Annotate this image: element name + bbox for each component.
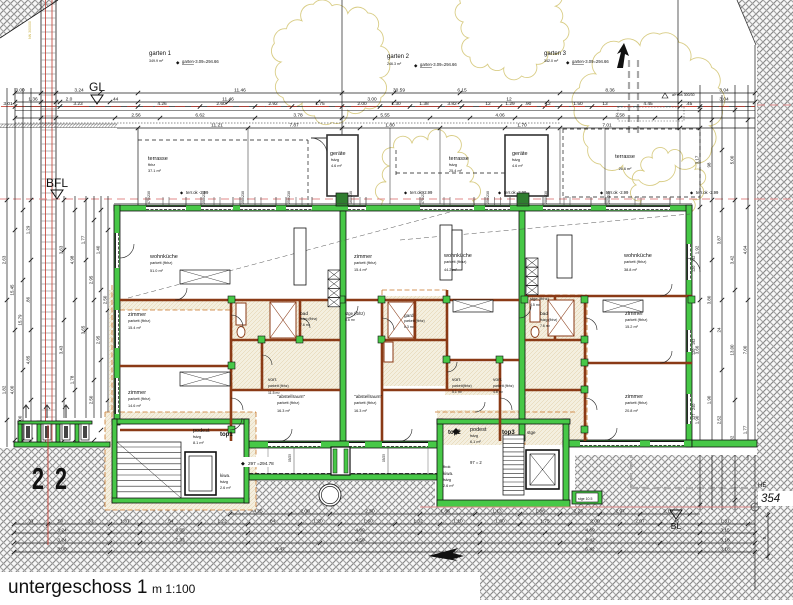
svg-text:parkett(fbhz): parkett(fbhz) [452,384,472,388]
svg-text:terr.ok -2.99: terr.ok -2.99 [696,190,719,195]
svg-text:44.2 m²: 44.2 m² [444,268,458,272]
svg-text:fstzg: fstzg [331,158,339,162]
svg-text:◆: ◆ [414,63,418,68]
svg-text:garten 1: garten 1 [149,51,172,57]
svg-text:1.31: 1.31 [720,518,730,524]
svg-text:240: 240 [692,404,696,410]
svg-text:98: 98 [707,162,712,167]
svg-text:1.32: 1.32 [413,518,423,524]
svg-text:475/230: 475/230 [421,191,425,204]
svg-text:1.90: 1.90 [707,395,712,404]
svg-text:◆: ◆ [176,60,180,65]
svg-text:3.00: 3.00 [367,96,377,102]
svg-text:garten 2: garten 2 [387,54,410,60]
svg-text:3.04: 3.04 [719,96,729,102]
svg-text:fstzg: fstzg [512,158,520,162]
svg-text:8.36: 8.36 [605,87,615,93]
svg-text:11.21: 11.21 [211,122,223,128]
svg-text:4.59: 4.59 [355,537,365,543]
svg-text:1.80: 1.80 [385,122,395,128]
svg-text:127: 127 [692,414,696,420]
svg-text:2: 2 [32,461,44,496]
svg-text:15.2 m²: 15.2 m² [625,325,639,329]
svg-text:4.5 m²: 4.5 m² [530,303,541,307]
svg-text:stge: stge [527,430,536,435]
svg-text:.33: .33 [27,518,34,524]
svg-text:4.6 m²: 4.6 m² [331,164,342,168]
svg-text:11.46: 11.46 [234,87,246,93]
svg-text:geräte: geräte [512,151,528,157]
svg-text:246.3 m²: 246.3 m² [387,62,402,66]
svg-text:16.3 m²: 16.3 m² [354,409,368,413]
svg-text:garten 3: garten 3 [544,51,567,57]
svg-text:BFL: BFL [46,176,68,190]
svg-text:26.6 m²: 26.6 m² [619,167,633,171]
svg-text:05/25: 05/25 [288,454,292,462]
svg-text:parkett (fbhz): parkett (fbhz) [444,260,467,264]
svg-text:HE: HE [758,483,766,489]
svg-text:349.9 m²: 349.9 m² [149,59,164,63]
svg-text:3.17: 3.17 [695,155,700,164]
svg-text:kiwa.: kiwa. [443,471,453,476]
svg-text:3.87: 3.87 [717,235,722,244]
svg-text:4.6 m²: 4.6 m² [512,164,523,168]
svg-text:38.8 m²: 38.8 m² [624,268,638,272]
svg-text:terrasse: terrasse [615,154,635,160]
svg-text:2.50: 2.50 [89,395,94,404]
svg-text:◆: ◆ [566,60,570,65]
svg-text:5: 5 [762,536,767,539]
svg-text:51.0 m²: 51.0 m² [150,269,164,273]
svg-text:6.62: 6.62 [195,112,205,118]
svg-text:1.13: 1.13 [492,508,502,514]
svg-text:3.15: 3.15 [720,527,730,533]
svg-text:parkett (fbhz): parkett (fbhz) [354,261,377,265]
svg-text:2.58: 2.58 [615,112,625,118]
svg-text:7.6 m²: 7.6 m² [300,323,311,327]
svg-text:1.87: 1.87 [120,518,130,524]
svg-text:1.22: 1.22 [217,518,227,524]
svg-text:parkett (fbhz): parkett (fbhz) [625,318,648,322]
svg-text:4.85: 4.85 [26,355,31,364]
svg-text:120: 120 [692,266,696,272]
svg-text:"abstellraum": "abstellraum" [354,394,382,400]
svg-text:3.43: 3.43 [59,345,64,354]
svg-text:5.1 m²: 5.1 m² [452,390,463,394]
svg-text:1.60: 1.60 [363,518,373,524]
svg-text:podest: podest [470,427,487,433]
svg-text:15.4 m²: 15.4 m² [354,268,368,272]
svg-text:zimmer: zimmer [128,390,146,396]
svg-text:2.0: 2.0 [66,96,73,102]
svg-text:wohnküche: wohnküche [623,253,652,259]
svg-text:250/230: 250/230 [241,191,245,204]
svg-text:4.25: 4.25 [253,508,263,514]
svg-text:stge 10.5: stge 10.5 [578,497,592,501]
svg-text:zimmer: zimmer [625,311,643,317]
svg-text:1.20: 1.20 [313,518,323,524]
svg-text:bad: bad [540,311,548,317]
svg-text:untergeschoss 1: untergeschoss 1 [8,577,147,598]
svg-text:3.24: 3.24 [57,527,67,533]
svg-text:4.69: 4.69 [585,527,595,533]
svg-text:160/230: 160/230 [349,191,353,204]
svg-text:37.1 m²: 37.1 m² [148,169,162,173]
svg-text:4.98: 4.98 [70,255,75,264]
svg-text:6.1 m²: 6.1 m² [470,440,481,444]
svg-text:3.18: 3.18 [720,537,730,543]
svg-text:parkett (fbhz): parkett (fbhz) [268,384,289,388]
svg-text:15.4 m²: 15.4 m² [128,326,142,330]
svg-text:475/230: 475/230 [147,191,151,204]
svg-text:2.95: 2.95 [89,275,94,284]
svg-text:al+nus 300/30: al+nus 300/30 [672,93,695,97]
svg-text:vorr.: vorr. [493,377,502,383]
svg-text:stge (fbhz): stge (fbhz) [345,311,365,316]
svg-text:5.00: 5.00 [730,155,735,164]
svg-text:1.36: 1.36 [28,96,38,102]
svg-text:1.10: 1.10 [453,518,463,524]
svg-text:2.56: 2.56 [131,112,141,118]
svg-text:297 =294.78: 297 =294.78 [248,461,274,466]
svg-text:2.52: 2.52 [717,415,722,424]
svg-text:265/230: 265/230 [607,191,611,204]
svg-text:5.6 m²: 5.6 m² [345,318,356,322]
svg-text:"abstellraum": "abstellraum" [277,394,305,400]
svg-text:1.77: 1.77 [743,425,748,434]
svg-text:30.59: 30.59 [393,87,405,93]
svg-text:354: 354 [761,493,780,505]
svg-text:2.6 m²: 2.6 m² [220,486,231,490]
svg-text:3.80: 3.80 [707,295,712,304]
svg-text:top3: top3 [502,430,515,436]
svg-text:fstzg: fstzg [193,435,201,439]
svg-text:fstzg: fstzg [220,480,228,484]
svg-text:3.00: 3.00 [57,546,67,552]
svg-text:3.24: 3.24 [74,87,84,93]
svg-text:geräte: geräte [330,151,346,157]
svg-text:3.42: 3.42 [730,255,735,264]
svg-text:250/230: 250/230 [287,191,291,204]
svg-text:top1: top1 [220,432,233,438]
svg-text:1.88: 1.88 [535,508,545,514]
svg-text:2.63: 2.63 [2,255,7,264]
svg-text:parkett (fbhz): parkett (fbhz) [277,401,300,405]
svg-text:4.06: 4.06 [495,112,505,118]
svg-text:2.00: 2.00 [590,518,600,524]
svg-text:fstzg (fbhz): fstzg (fbhz) [300,317,317,321]
svg-text:5.55: 5.55 [380,112,390,118]
svg-text:m 1:100: m 1:100 [152,582,196,596]
svg-text:2.50: 2.50 [365,508,375,514]
svg-text:05/25: 05/25 [382,454,386,462]
svg-text:fstzg (fbhz): fstzg (fbhz) [540,318,557,322]
svg-text:25.4 m²: 25.4 m² [449,169,463,173]
svg-text:3.24: 3.24 [57,537,67,543]
svg-text:250/230: 250/230 [202,191,206,204]
svg-text:GL: GL [89,80,105,94]
svg-text:120: 120 [692,349,696,355]
svg-text:13.00: 13.00 [730,344,735,356]
svg-text:250/230: 250/230 [486,191,490,204]
svg-text:6.35: 6.35 [175,527,185,533]
svg-text:garten-3.09=294.66: garten-3.09=294.66 [572,59,609,64]
svg-text:vorr.: vorr. [268,377,277,383]
svg-text:fstzg: fstzg [443,478,451,482]
svg-text:1.88: 1.88 [440,508,450,514]
svg-text:terrasse: terrasse [148,156,168,162]
svg-text:2.97: 2.97 [615,508,625,514]
svg-text:kiwa.: kiwa. [220,473,230,478]
svg-text:15.79: 15.79 [18,314,23,326]
svg-text:fbhz: fbhz [148,163,155,167]
svg-text:parkett (fbhz): parkett (fbhz) [150,261,173,265]
svg-text:BL: BL [671,521,682,531]
svg-text:6.15: 6.15 [457,87,467,93]
svg-text:3.18: 3.18 [720,546,730,552]
svg-text:342.0 m²: 342.0 m² [544,59,559,63]
svg-text:192: 192 [692,256,696,262]
svg-text:3.63: 3.63 [59,245,64,254]
svg-text:podest: podest [193,428,210,434]
svg-text:fbok: fbok [443,464,451,469]
svg-text:6.42: 6.42 [585,546,595,552]
svg-text:2.10: 2.10 [663,508,673,514]
svg-text:wohnküche: wohnküche [443,253,472,259]
svg-text:garten-3.09=294.66: garten-3.09=294.66 [420,62,457,67]
svg-text:1.29: 1.29 [26,225,31,234]
svg-text:3.00: 3.00 [15,87,25,93]
svg-text:2.50: 2.50 [103,295,108,304]
svg-text:15.45: 15.45 [10,284,15,296]
svg-text:4.64: 4.64 [743,245,748,254]
svg-text:9.47: 9.47 [275,546,285,552]
svg-text:.44: .44 [112,96,119,102]
svg-text:192: 192 [692,339,696,345]
svg-text:wohnküche: wohnküche [149,254,178,260]
svg-text:2.95: 2.95 [96,335,101,344]
svg-text:2.23: 2.23 [573,508,583,514]
svg-text:NN 300000: NN 300000 [28,21,32,39]
svg-text:vorr.: vorr. [452,377,461,383]
svg-text:4.8 m²: 4.8 m² [493,390,504,394]
svg-text:6.42: 6.42 [585,537,595,543]
svg-text:7.00: 7.00 [743,345,748,354]
svg-text:280/230: 280/230 [544,191,548,204]
svg-text:parkett (fbhz): parkett (fbhz) [624,260,647,264]
svg-text:1.60: 1.60 [495,518,505,524]
svg-text:3.78: 3.78 [293,112,303,118]
svg-text:parkett (fbhz): parkett (fbhz) [625,401,648,405]
svg-text:◆: ◆ [241,461,245,467]
svg-text:4.00: 4.00 [10,385,15,394]
svg-text:3.65: 3.65 [81,325,86,334]
svg-text:stge (fbhz): stge (fbhz) [530,296,550,301]
svg-text:1.75: 1.75 [540,518,550,524]
svg-text:7.6 m²: 7.6 m² [540,324,551,328]
svg-text:7.87: 7.87 [289,122,299,128]
svg-text:1.70: 1.70 [517,122,527,128]
svg-text:2.00: 2.00 [300,508,310,514]
svg-text:.54: .54 [167,518,174,524]
svg-text:14.6 m²: 14.6 m² [128,404,142,408]
svg-text:2.07: 2.07 [635,518,645,524]
svg-text:6.3 m²: 6.3 m² [404,325,415,329]
svg-text:zimmer: zimmer [354,254,372,260]
svg-text:parkett (fbhz): parkett (fbhz) [493,384,514,388]
svg-text:1.92: 1.92 [695,245,700,254]
svg-text:parkett (fbhz): parkett (fbhz) [128,397,151,401]
svg-text:fstzg: fstzg [449,163,457,167]
svg-text:4.69: 4.69 [355,527,365,533]
svg-text:terrasse: terrasse [449,156,469,162]
svg-text:2.6 m²: 2.6 m² [443,484,454,488]
svg-text:parkett (fbhz): parkett (fbhz) [128,319,151,323]
svg-text:1.78: 1.78 [70,375,75,384]
svg-text:.84: .84 [269,518,276,524]
svg-text:garten-3.09=294.66: garten-3.09=294.66 [182,59,219,64]
svg-text:7.33: 7.33 [175,537,185,543]
svg-text:zimmer: zimmer [625,394,643,400]
svg-text:zimmer: zimmer [128,312,146,318]
svg-text:.50: .50 [57,518,64,524]
svg-text:8.1 m²: 8.1 m² [193,441,204,445]
svg-text:16.3 m²: 16.3 m² [277,409,291,413]
svg-text:parkett (fbhz): parkett (fbhz) [354,401,377,405]
svg-text:1.40: 1.40 [96,245,101,254]
svg-text:20.8 m²: 20.8 m² [625,409,639,413]
svg-text:1.82: 1.82 [2,385,7,394]
svg-text:fstzg: fstzg [470,434,478,438]
svg-text:24: 24 [717,327,722,332]
svg-text:97 = 2: 97 = 2 [470,460,482,465]
svg-text:parkett (fbhz): parkett (fbhz) [404,319,425,323]
svg-text:7.01: 7.01 [602,122,612,128]
svg-text:.33: .33 [87,518,94,524]
svg-text:.86: .86 [26,296,31,303]
svg-text:2: 2 [55,461,67,496]
svg-text:3.04: 3.04 [719,87,729,93]
svg-text:1.77: 1.77 [81,235,86,244]
